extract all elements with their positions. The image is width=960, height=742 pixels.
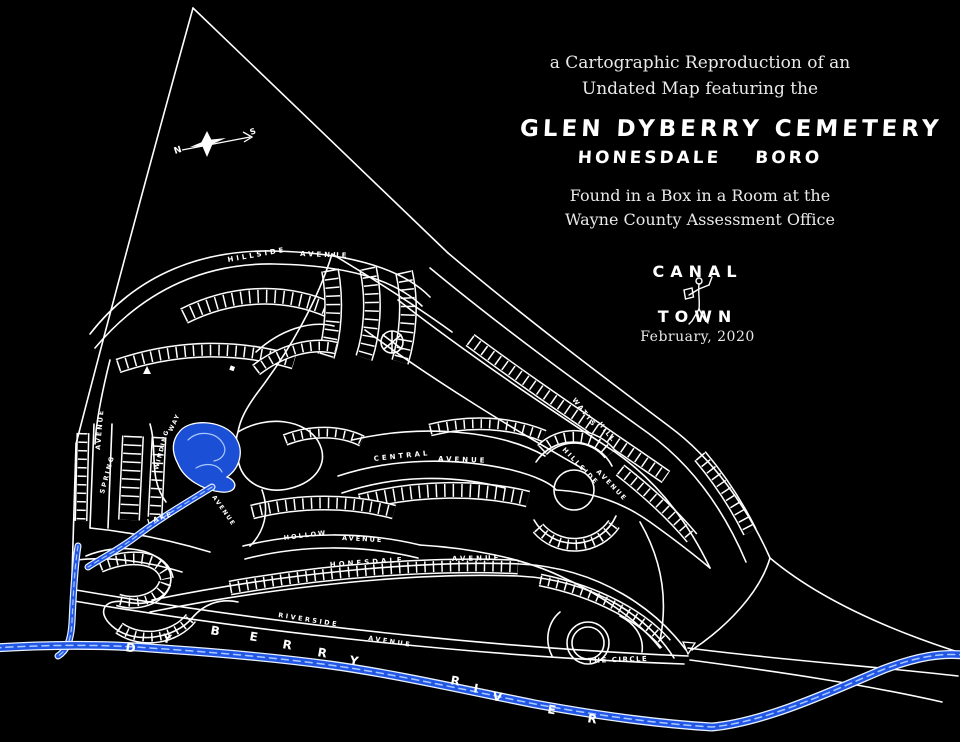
triangle-marker — [143, 366, 151, 374]
boro-name: HONESDALE — [577, 148, 722, 168]
road-path — [236, 421, 322, 490]
compass-north-label: N — [173, 145, 183, 157]
canal-town-figure-icon — [678, 274, 718, 326]
map-label: AVENUE — [452, 554, 502, 563]
subtitle-line-1: a Cartographic Reproduction of an — [520, 50, 880, 76]
map-label: SPRING — [98, 454, 116, 494]
road-path — [692, 558, 770, 650]
river-name-letter: V — [491, 689, 503, 705]
monument-marker — [229, 365, 235, 371]
road-path — [548, 612, 560, 656]
map-canvas: N S HILLSIDEAVENUEWATTSHILLHILLSIDEAVENU… — [0, 0, 960, 742]
map-label: HILLSIDE — [561, 446, 601, 487]
road-path — [243, 535, 420, 546]
burial-plot-strip-fill — [620, 470, 692, 538]
the-circle-inner — [572, 627, 604, 659]
map-subtitle: HONESDALEBORO — [519, 148, 880, 168]
river-name-letter: E — [248, 629, 259, 644]
road-path — [332, 254, 452, 332]
map-label: THE CIRCLE — [588, 655, 649, 665]
map-label: AVENUE — [94, 408, 106, 450]
map-title: GLEN DYBERRY CEMETERY — [519, 116, 880, 142]
found-line-1: Found in a Box in a Room at the — [520, 184, 880, 208]
lake — [173, 423, 240, 493]
map-label: HOLLOW — [283, 529, 327, 542]
river-name-letter: B — [209, 623, 220, 638]
road-path — [770, 558, 958, 652]
found-line-2: Wayne County Assessment Office — [520, 208, 880, 232]
compass-rose: N S — [173, 126, 257, 157]
canal-town-logo: CANAL TOWN February, 2020 — [600, 262, 795, 345]
map-label: AVENUE — [342, 534, 384, 544]
compass-needle — [182, 137, 250, 150]
road-path — [193, 8, 448, 253]
river-name-letter: R — [586, 711, 598, 726]
subtitle-line-2: Undated Map featuring the — [520, 76, 880, 102]
logo-date: February, 2020 — [600, 329, 795, 345]
map-label: WAY — [167, 412, 181, 432]
tributary-stream — [58, 546, 78, 656]
title-block: a Cartographic Reproduction of an Undate… — [520, 50, 880, 232]
river-name-letters: DYBERRYRIVER — [124, 623, 598, 726]
burial-plot-strip-fill — [285, 433, 362, 441]
map-label: AVENUE — [300, 250, 350, 260]
map-label: HILLSIDE — [227, 246, 287, 264]
map-label: RIVERSIDE — [278, 611, 340, 628]
road-path — [76, 8, 193, 444]
map-label: AVENUE — [438, 455, 488, 465]
burial-plot-strip-fill — [129, 436, 133, 520]
map-label: AVENUE — [368, 634, 413, 649]
boro-word: BORO — [755, 148, 823, 168]
river-name-letter: D — [124, 640, 136, 656]
river-name-letter: R — [316, 645, 328, 660]
map-label: AVENUE — [210, 494, 236, 527]
road-path — [90, 424, 94, 528]
road-path — [352, 431, 545, 456]
dyberry-river — [0, 645, 960, 727]
river-name-letter: R — [281, 637, 293, 652]
road-path — [90, 528, 210, 552]
burial-plot-strip-fill — [252, 503, 394, 512]
river-name-letter: E — [546, 702, 557, 717]
